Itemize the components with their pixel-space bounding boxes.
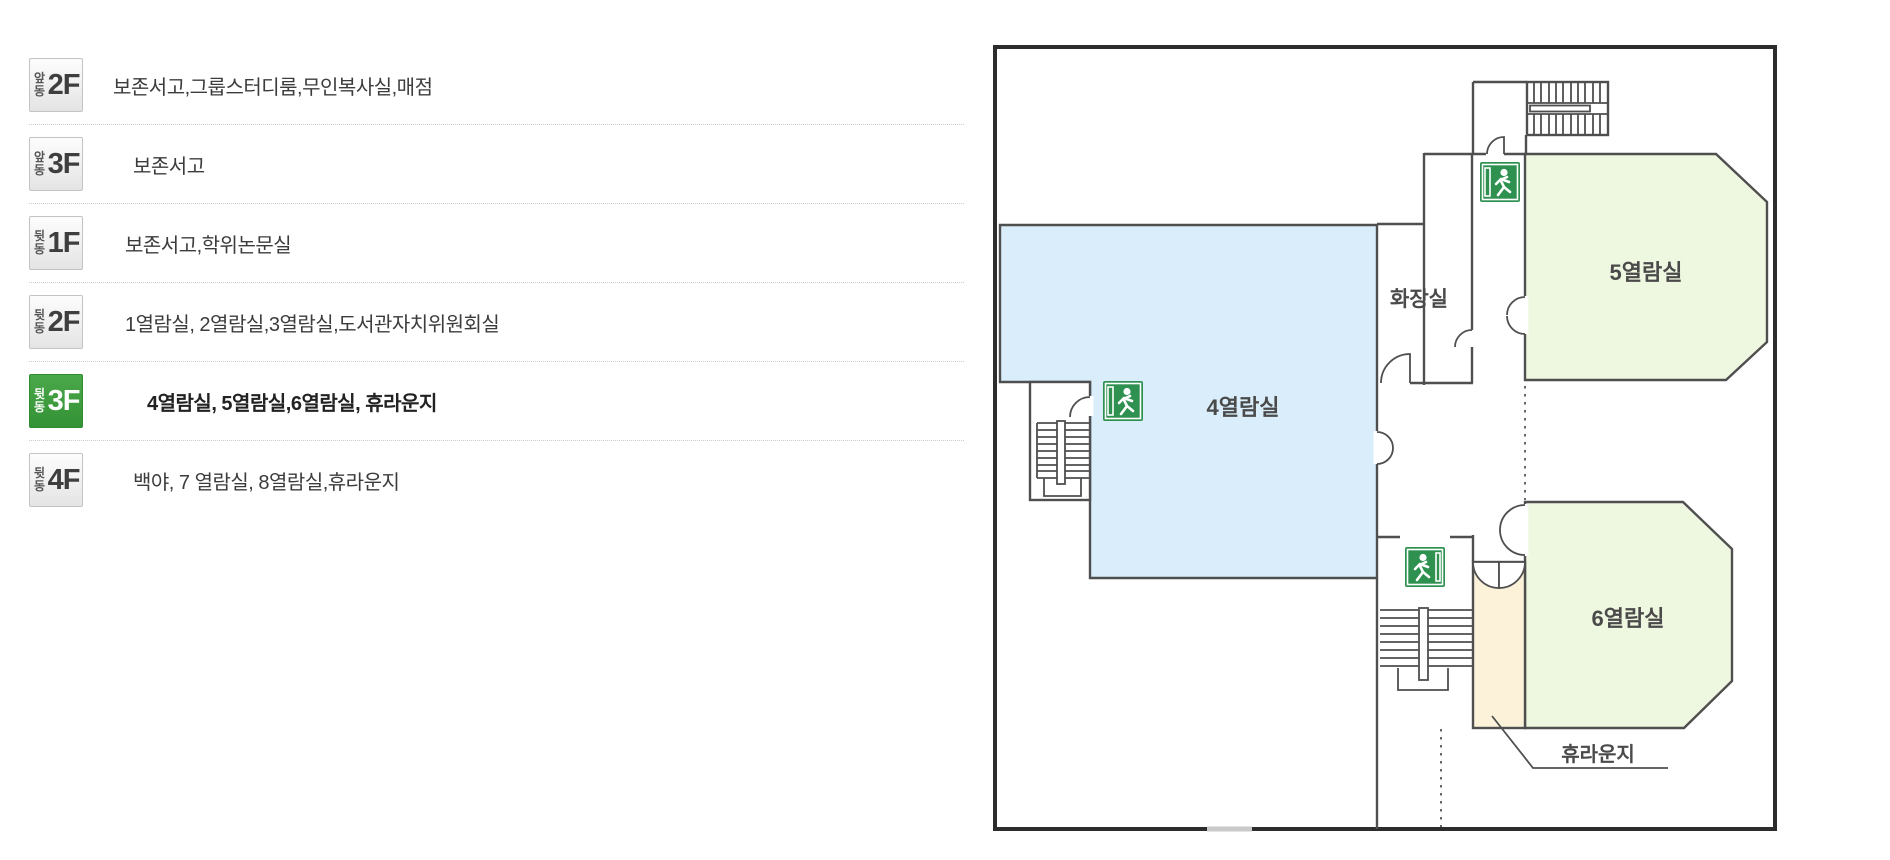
- exit-sign-icon: [1480, 162, 1520, 202]
- room-label-reading-6: 6열람실: [1592, 606, 1665, 631]
- room-label-reading-5: 5열람실: [1610, 260, 1683, 285]
- floor-plan: 4열람실 5열람실 6열람실 화장실 휴라운지: [0, 0, 1890, 860]
- room-label-restroom: 화장실: [1390, 288, 1448, 311]
- room-label-reading-4: 4열람실: [1207, 395, 1280, 420]
- exit-sign-icon: [1405, 547, 1445, 587]
- room-label-lounge: 휴라운지: [1561, 743, 1635, 766]
- stairs-top: [1527, 82, 1608, 135]
- exit-sign-icon: [1103, 381, 1143, 421]
